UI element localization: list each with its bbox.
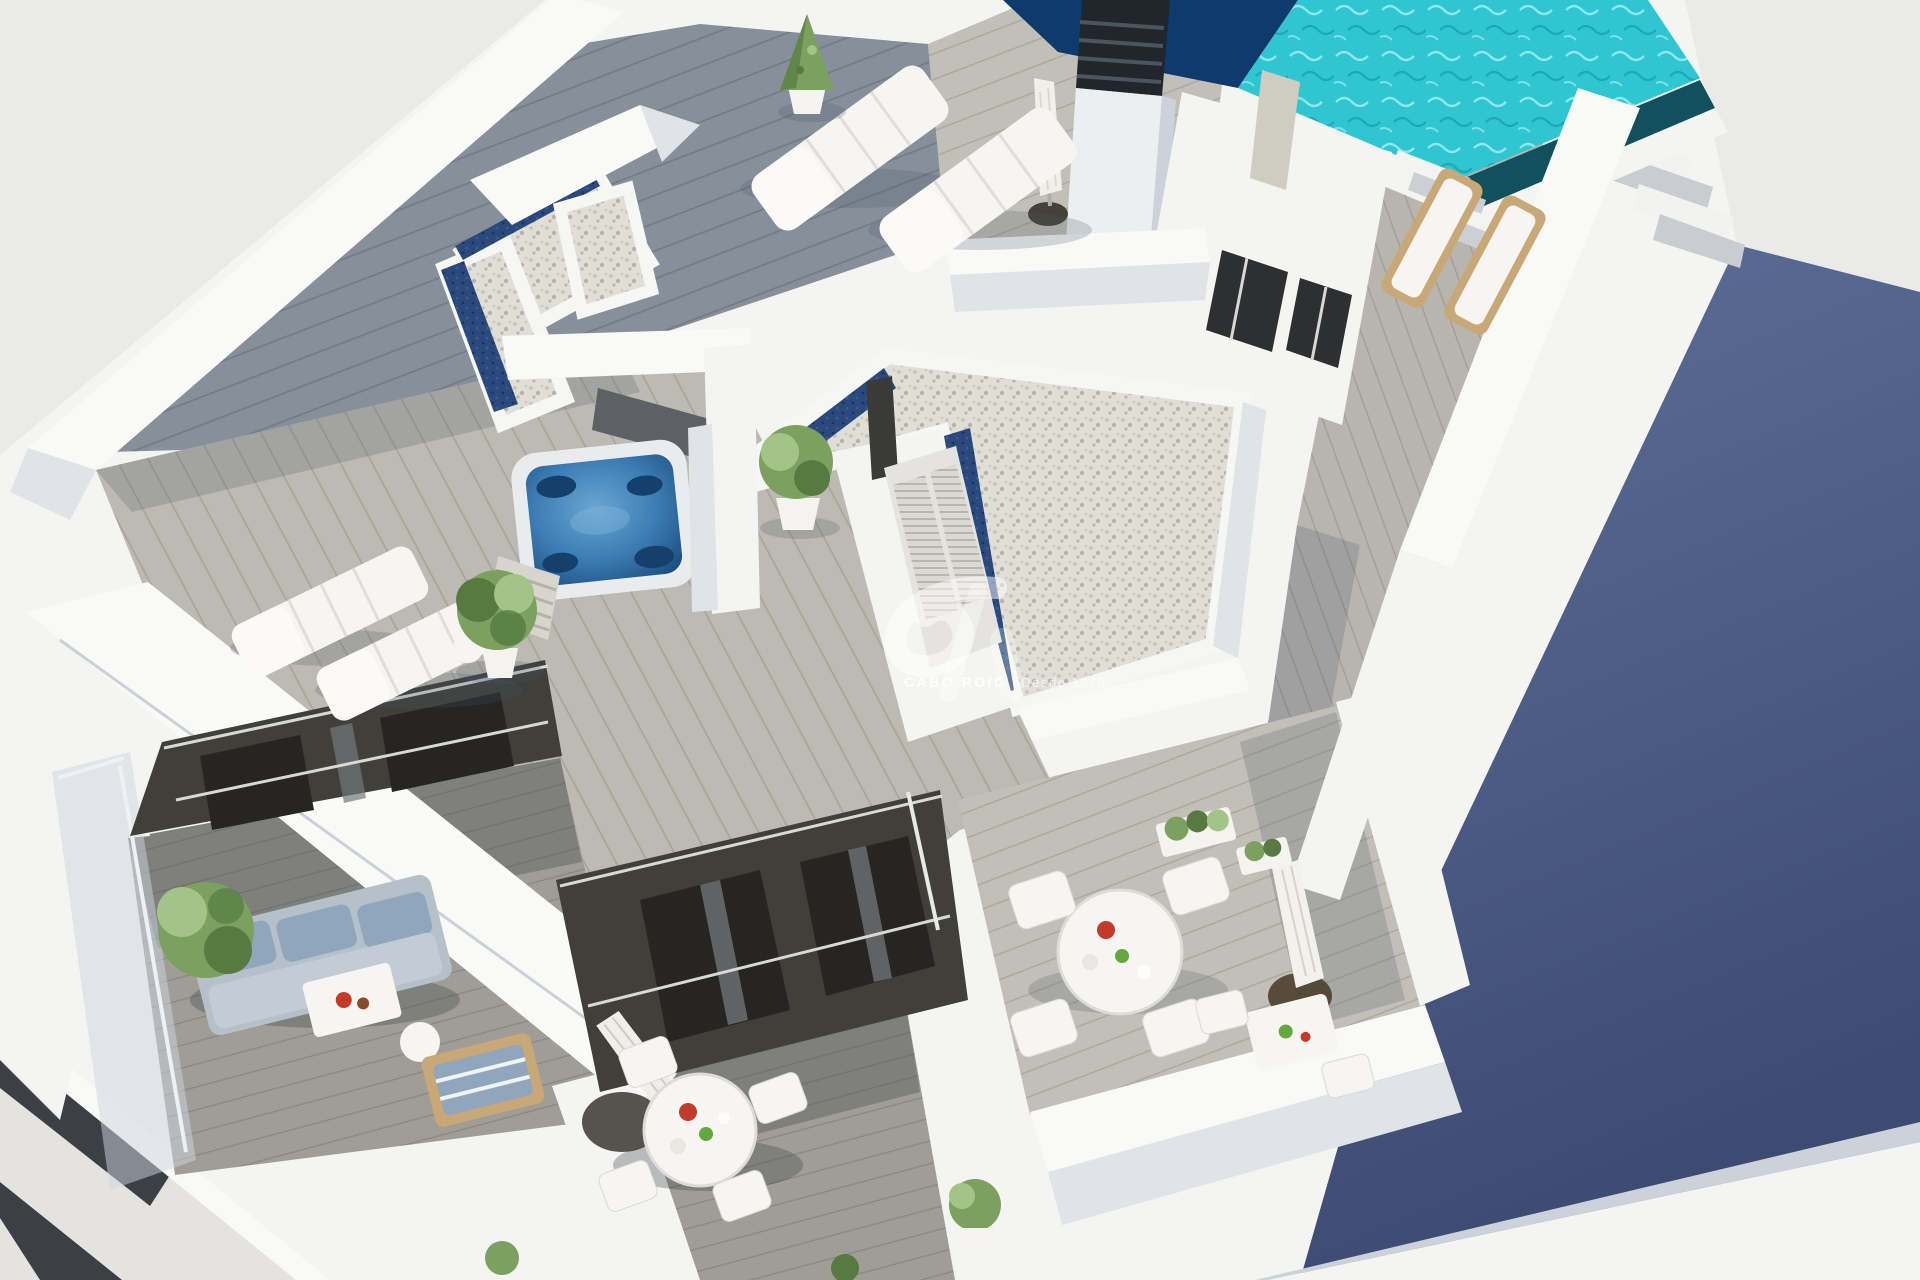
gravel-roof-small — [560, 188, 652, 312]
rooftop-render-image: CABO ROIG Desde 1970 — [0, 0, 1920, 1280]
rooftop-scene — [0, 0, 1920, 1280]
potted-tree-central — [456, 570, 544, 684]
